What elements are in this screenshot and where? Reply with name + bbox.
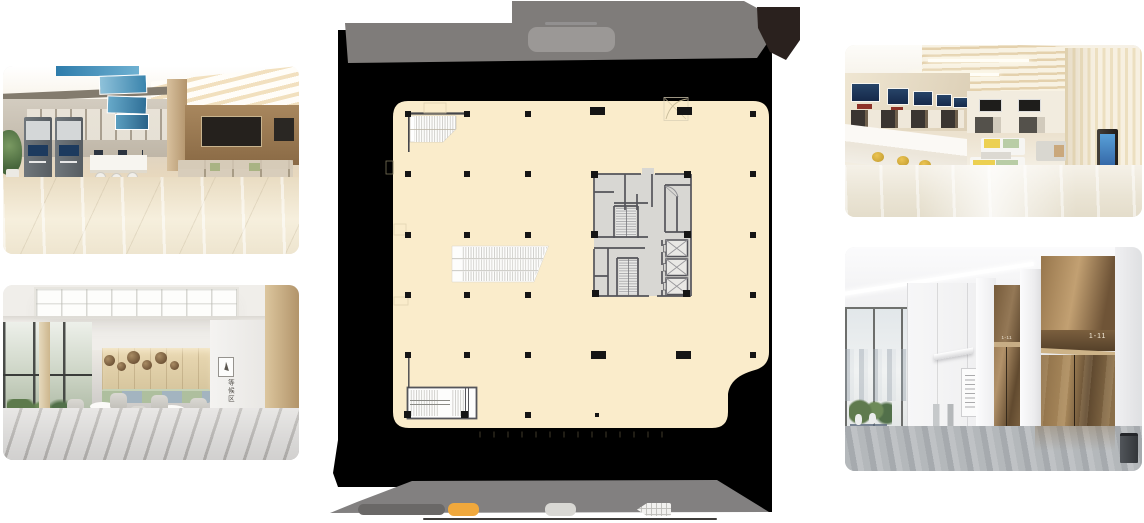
hanging-posters [87,75,146,131]
elevator-core [594,168,691,296]
sofa-backrest [178,160,293,169]
legend-swatch-orange[interactable] [448,503,479,516]
legend-baseline [423,518,717,520]
elevator-near-label: 1-11 [1041,333,1115,340]
queue-screen [851,83,880,102]
elevator-far-label: 1-11 [994,335,1021,340]
city-skyline [845,349,907,401]
bench-back [981,152,1011,160]
curtain-wall-window [845,307,907,432]
poster [107,95,147,114]
elevator-far-doorsplit [1006,347,1007,436]
kiosk-panel [57,121,81,140]
pendant-lamp [127,351,140,364]
lounge-chair [869,413,876,424]
cushion-yellow [984,139,1000,148]
counter-monitors [94,150,143,155]
side-table [1054,145,1064,157]
elevator-near-panel [1041,256,1115,330]
far-screen [1018,99,1042,113]
elevator-far: 1-11 [994,285,1021,435]
far-doorways [975,117,1057,133]
elevator-far-header: 1-11 [994,285,1021,342]
title-plate-caption [545,22,597,25]
kiosk-screen [28,145,48,157]
wood-floor [845,426,1142,471]
red-sign [857,104,872,109]
floor-plan-panel [330,0,802,523]
pendant-lamp [104,355,115,366]
photo-service-hall[interactable] [3,66,299,254]
cushion-green [1003,139,1019,148]
floor [845,165,1142,217]
wood-pillar [167,79,186,171]
directory-lines [965,375,974,411]
kiosk-panel [26,121,50,140]
queue-screen [887,88,910,105]
elevator-shafts [664,240,688,295]
wood-wall [185,105,299,164]
trash-bin [1120,433,1138,463]
queue-screen [936,94,953,107]
teller-windows [851,110,964,127]
sign-label: 等候区 [218,378,233,404]
display-screen-small [274,118,295,141]
display-screen [201,116,262,146]
photo-counter-hall[interactable] [845,45,1142,217]
kiosk-slot [60,161,77,163]
sign-frame [218,357,235,377]
door-reflection [1035,426,1115,451]
floor-plate [393,101,769,428]
pilaster [1020,269,1041,444]
legend-swatch-light[interactable] [545,503,576,516]
title-plate [528,27,615,52]
legend-swatch-dark[interactable] [358,504,445,515]
info-counter [90,155,146,173]
crane-icon [223,362,229,371]
photo-elevator-lobby[interactable]: 1-11 1-11 [845,247,1142,471]
far-screen [979,99,1003,113]
queue-screen [913,91,933,106]
pillow [210,163,220,171]
poster [115,114,149,131]
escalator [452,246,549,282]
queue-screen [953,97,967,108]
kiosk-screen [59,145,79,157]
yellow-stool [872,152,884,162]
floor [3,177,299,254]
waiting-area-sign: 等候区 [218,357,233,404]
skylight [36,289,237,317]
kiosk-slot [29,161,46,163]
pendant-lamp [117,362,126,371]
marble-floor [3,408,299,461]
bench-right [1036,141,1065,162]
pillow [249,163,259,171]
poster [99,75,148,96]
light-strip [928,59,1029,62]
far-wall [967,91,1065,132]
photo-waiting-lounge[interactable]: 等候区 [3,285,299,460]
wall-sliver [1115,247,1142,435]
page: 等候区 [0,0,1144,523]
